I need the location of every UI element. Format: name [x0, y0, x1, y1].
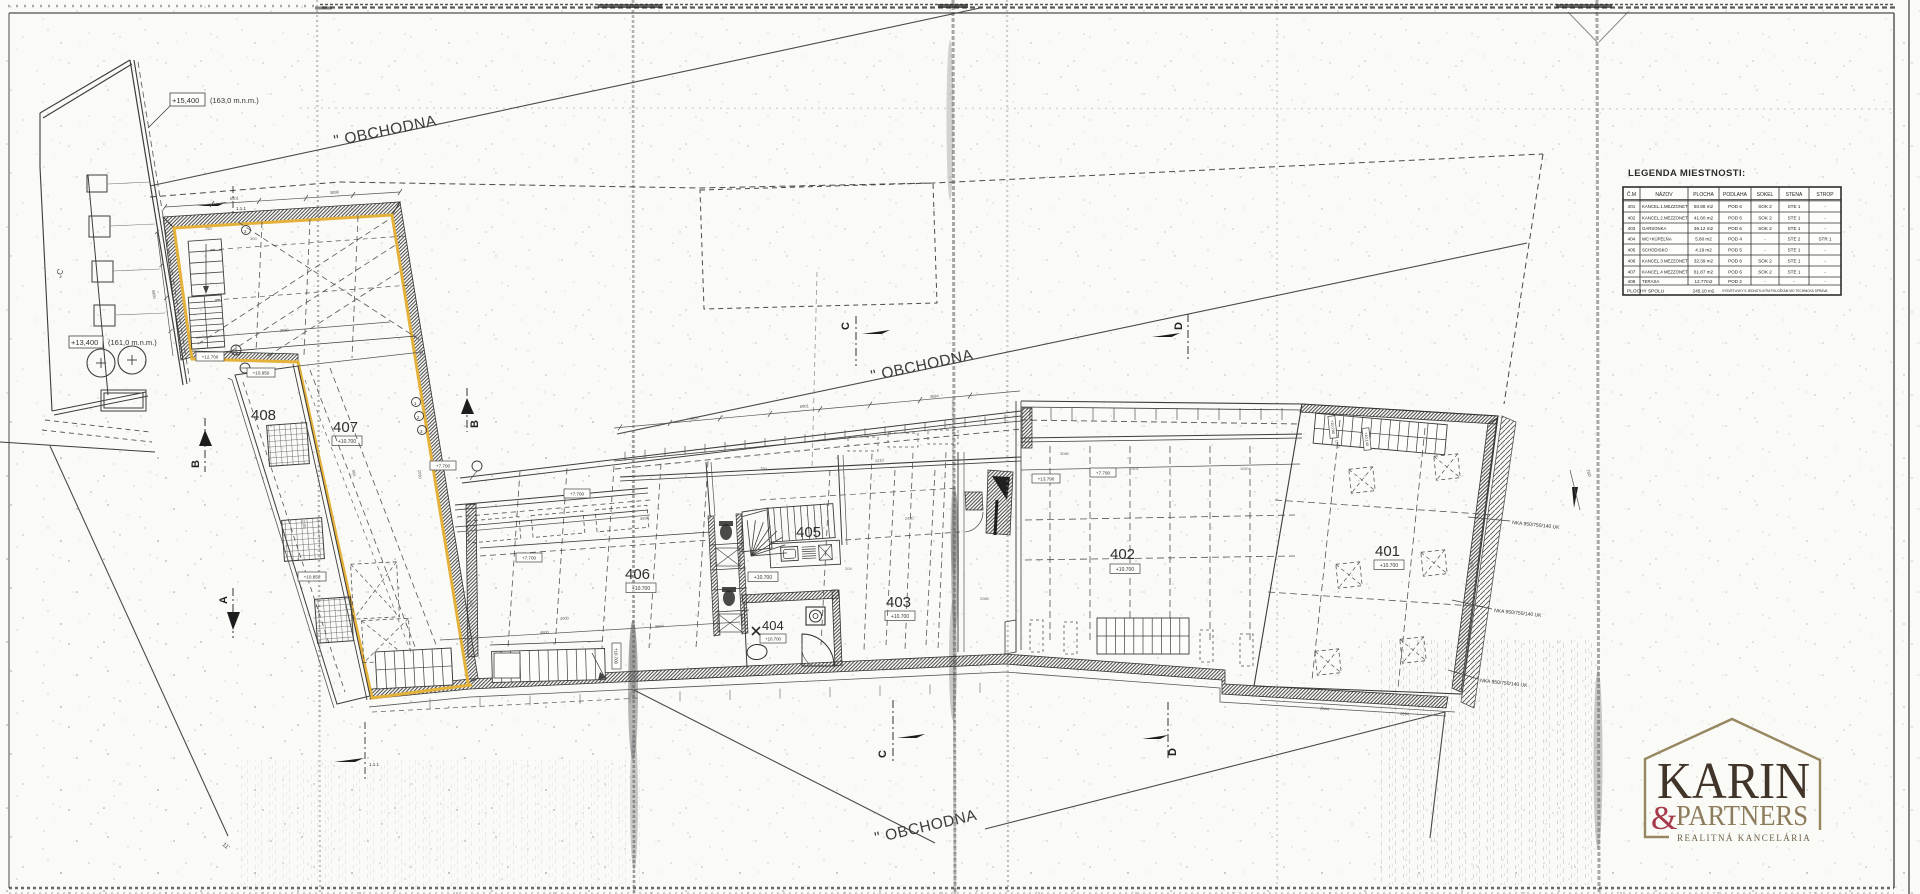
svg-text:D: D	[1167, 748, 1179, 756]
svg-text:POD 2: POD 2	[1728, 279, 1742, 284]
svg-text:5.80 m2: 5.80 m2	[1695, 237, 1712, 242]
svg-text:+7.790: +7.790	[1096, 471, 1111, 476]
svg-text:408: 408	[251, 407, 276, 424]
svg-text:STE 2: STE 2	[1788, 237, 1801, 242]
svg-text:2030: 2030	[417, 470, 423, 480]
svg-text:7501: 7501	[1130, 466, 1140, 471]
svg-text:+10.700: +10.700	[338, 439, 356, 445]
svg-text:STENA: STENA	[1786, 192, 1803, 198]
svg-text:+13.790: +13.790	[1038, 477, 1055, 482]
svg-text:PLOCHY SPOLU: PLOCHY SPOLU	[1627, 289, 1665, 295]
svg-text:3694: 3694	[640, 515, 650, 521]
svg-text:404: 404	[1628, 237, 1636, 242]
svg-text:2080: 2080	[980, 596, 990, 601]
svg-text:3694: 3694	[930, 393, 940, 399]
svg-text:404: 404	[762, 618, 784, 633]
svg-text:STE 1: STE 1	[1788, 270, 1801, 275]
svg-text:750: 750	[205, 226, 212, 231]
svg-text:KANCEL.4 MEZZONET: KANCEL.4 MEZZONET	[1642, 270, 1688, 275]
svg-text:+10.950: +10.950	[253, 371, 270, 376]
svg-text:403: 403	[1628, 226, 1636, 231]
svg-text:(163,0 m.n.m.): (163,0 m.n.m.)	[210, 96, 259, 105]
svg-text:503: 503	[419, 350, 425, 358]
svg-text:405: 405	[1628, 248, 1636, 253]
svg-text:&: &	[1651, 800, 1677, 837]
svg-text:POD 4: POD 4	[1728, 237, 1742, 242]
svg-text:B: B	[469, 420, 481, 428]
svg-text:1.1.1: 1.1.1	[236, 206, 247, 211]
svg-text:401: 401	[1628, 204, 1636, 209]
svg-text:+10.850: +10.850	[304, 575, 321, 580]
svg-text:VYSVETLIVKY K JEDNOTLIVÝM POLO: VYSVETLIVKY K JEDNOTLIVÝM POLOŽKÁM VID T…	[1722, 288, 1828, 293]
svg-text:KANCEL.2.MEZZONET: KANCEL.2.MEZZONET	[1642, 216, 1688, 221]
svg-text:+10.700: +10.700	[1116, 567, 1134, 573]
svg-text:408: 408	[1628, 279, 1636, 284]
svg-text:32.39 m2: 32.39 m2	[1694, 259, 1714, 264]
svg-text:950: 950	[469, 600, 474, 607]
svg-text:1210: 1210	[875, 457, 885, 462]
svg-text:(161,0 m.n.m.): (161,0 m.n.m.)	[108, 338, 157, 347]
svg-text:STR 1: STR 1	[1818, 237, 1831, 242]
svg-text:STE 1: STE 1	[1788, 204, 1801, 209]
svg-text:STROP: STROP	[1816, 192, 1834, 198]
svg-text:+7.700: +7.700	[522, 556, 537, 561]
svg-text:SOK 2: SOK 2	[1758, 216, 1772, 221]
svg-text:POD 5: POD 5	[1728, 248, 1742, 253]
svg-text:4.19 m2: 4.19 m2	[1695, 248, 1712, 253]
svg-text:STE 1: STE 1	[1788, 259, 1801, 264]
svg-text:SOK 2: SOK 2	[1758, 204, 1772, 209]
svg-text:61.87 m2: 61.87 m2	[1694, 270, 1714, 275]
svg-text:+10.700: +10.700	[632, 586, 650, 592]
svg-text:SOK 2: SOK 2	[1758, 259, 1772, 264]
svg-text:A: A	[218, 596, 230, 604]
svg-text:POD 6: POD 6	[1728, 226, 1742, 231]
svg-text:C: C	[877, 750, 889, 758]
svg-text:PLOCHA: PLOCHA	[1693, 192, 1714, 198]
svg-text:PARTNERS: PARTNERS	[1676, 800, 1808, 832]
svg-text:KANCEL.3 MEZZONET: KANCEL.3 MEZZONET	[1642, 259, 1688, 264]
svg-text:STE 1: STE 1	[1788, 248, 1801, 253]
svg-text:GARSONKA: GARSONKA	[1642, 226, 1666, 231]
svg-text:406: 406	[625, 566, 650, 583]
svg-text:402: 402	[1110, 546, 1135, 563]
svg-text:STE 1: STE 1	[1788, 216, 1801, 221]
svg-text:WC+KÚPEĽŇA: WC+KÚPEĽŇA	[1642, 237, 1672, 242]
svg-text:SOK 2: SOK 2	[1758, 270, 1772, 275]
svg-text:STE 1: STE 1	[1788, 226, 1801, 231]
svg-text:2094: 2094	[1400, 711, 1410, 717]
svg-text:41.60 m2: 41.60 m2	[1694, 216, 1714, 221]
svg-text:403: 403	[886, 594, 911, 611]
svg-text:+10.700: +10.700	[1380, 563, 1398, 569]
svg-text:TERASA: TERASA	[1642, 279, 1659, 284]
svg-text:POD 6: POD 6	[1728, 204, 1742, 209]
svg-text:8901: 8901	[800, 403, 810, 409]
svg-text:407: 407	[1628, 270, 1636, 275]
svg-text:PODLAHA: PODLAHA	[1723, 192, 1748, 198]
svg-text:50.88 m2: 50.88 m2	[1694, 204, 1714, 209]
svg-text:407: 407	[333, 419, 358, 436]
svg-text:300: 300	[250, 236, 257, 241]
svg-text:+10.700: +10.700	[765, 637, 782, 642]
svg-text:+10.700: +10.700	[891, 614, 909, 620]
svg-text:1.1.1: 1.1.1	[369, 762, 380, 767]
svg-text:1190: 1190	[1240, 466, 1249, 471]
svg-text:+12.700: +12.700	[202, 355, 219, 360]
svg-text:POD 6: POD 6	[1728, 216, 1742, 221]
svg-text:SCHODISKO: SCHODISKO	[1642, 248, 1668, 253]
svg-text:750: 750	[760, 466, 767, 471]
svg-text:NÁZOV: NÁZOV	[1655, 191, 1673, 198]
svg-text:SOKEL: SOKEL	[1757, 192, 1774, 198]
svg-text:3080: 3080	[1060, 451, 1070, 456]
svg-text:3898: 3898	[330, 189, 340, 195]
svg-text:+10.700: +10.700	[613, 648, 618, 665]
svg-text:C: C	[840, 322, 852, 330]
svg-text:402: 402	[1628, 216, 1636, 221]
svg-text:401: 401	[1375, 543, 1400, 560]
svg-text:POD 6: POD 6	[1728, 270, 1742, 275]
svg-text:REALITNÁ KANCELÁRIA: REALITNÁ KANCELÁRIA	[1677, 833, 1811, 843]
svg-text:4000: 4000	[690, 415, 700, 421]
svg-text:2480: 2480	[905, 515, 915, 521]
svg-text:204: 204	[845, 566, 852, 571]
svg-text:405: 405	[796, 524, 821, 541]
svg-text:+7.700: +7.700	[570, 492, 585, 497]
svg-text:KANCEL.1.MEZZONET: KANCEL.1.MEZZONET	[1642, 204, 1688, 209]
svg-text:36.12 m2: 36.12 m2	[1694, 226, 1714, 231]
svg-text:2030: 2030	[280, 327, 290, 333]
svg-text:3694: 3694	[655, 623, 665, 629]
svg-text:+7.700: +7.700	[436, 464, 451, 469]
svg-text:4000: 4000	[560, 615, 570, 620]
svg-text:245.10 m2: 245.10 m2	[1693, 289, 1715, 294]
svg-text:4600: 4600	[540, 629, 550, 635]
svg-text:SOK 2: SOK 2	[1758, 226, 1772, 231]
svg-text:LEGENDA MIESTNOSTI:: LEGENDA MIESTNOSTI:	[1628, 168, 1746, 179]
svg-text:12.77m2: 12.77m2	[1695, 279, 1713, 284]
svg-text:5801: 5801	[230, 195, 240, 201]
svg-text:2844: 2844	[1320, 706, 1330, 712]
svg-text:POD 6: POD 6	[1728, 259, 1742, 264]
svg-text:+13,400: +13,400	[71, 338, 98, 347]
svg-text:680: 680	[775, 596, 782, 601]
svg-text:D: D	[1173, 322, 1185, 330]
svg-text:Č.M: Č.M	[1627, 191, 1636, 198]
svg-text:B: B	[190, 460, 202, 468]
svg-text:406: 406	[1628, 259, 1636, 264]
svg-text:+15,400: +15,400	[172, 96, 199, 105]
svg-text:+10.700: +10.700	[754, 575, 772, 581]
